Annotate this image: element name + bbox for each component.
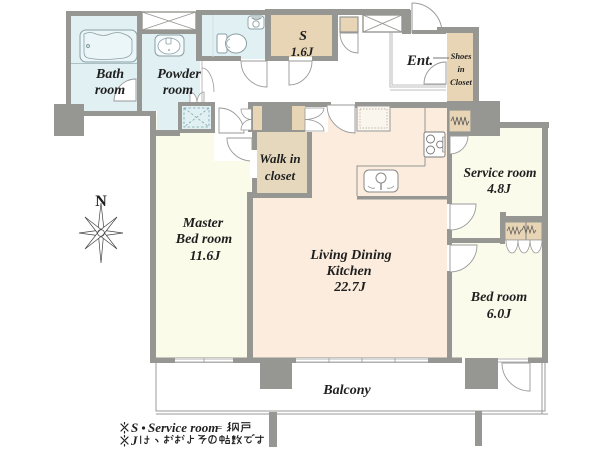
svg-text:22.7J: 22.7J (333, 280, 367, 295)
svg-text:Living Dining: Living Dining (309, 248, 391, 263)
svg-text:4.8J: 4.8J (486, 181, 512, 196)
svg-text:closet: closet (265, 168, 296, 183)
svg-text:Bed room: Bed room (470, 290, 528, 305)
svg-text:Shoes: Shoes (451, 51, 472, 61)
svg-text:=: = (216, 422, 222, 434)
svg-text:Master: Master (182, 216, 224, 231)
svg-text:Service room: Service room (463, 165, 536, 180)
svg-text:Service room: Service room (148, 420, 218, 435)
svg-text:Bath: Bath (95, 67, 124, 82)
svg-text:Walk in: Walk in (259, 151, 300, 166)
svg-text:S: S (299, 29, 307, 44)
svg-text:Powder: Powder (157, 67, 201, 82)
svg-text:Bed room: Bed room (175, 232, 233, 247)
svg-text:1.6J: 1.6J (291, 44, 314, 59)
svg-text:in: in (457, 64, 464, 74)
svg-text:Ent.: Ent. (406, 53, 433, 69)
svg-text:Kitchen: Kitchen (325, 264, 371, 279)
svg-text:6.0J: 6.0J (487, 307, 513, 322)
svg-text:Closet: Closet (450, 77, 472, 87)
svg-text:11.6J: 11.6J (190, 249, 222, 264)
svg-text:room: room (163, 83, 193, 98)
svg-text:Balcony: Balcony (322, 383, 371, 398)
svg-text:J: J (130, 433, 138, 448)
svg-text:room: room (95, 83, 125, 98)
